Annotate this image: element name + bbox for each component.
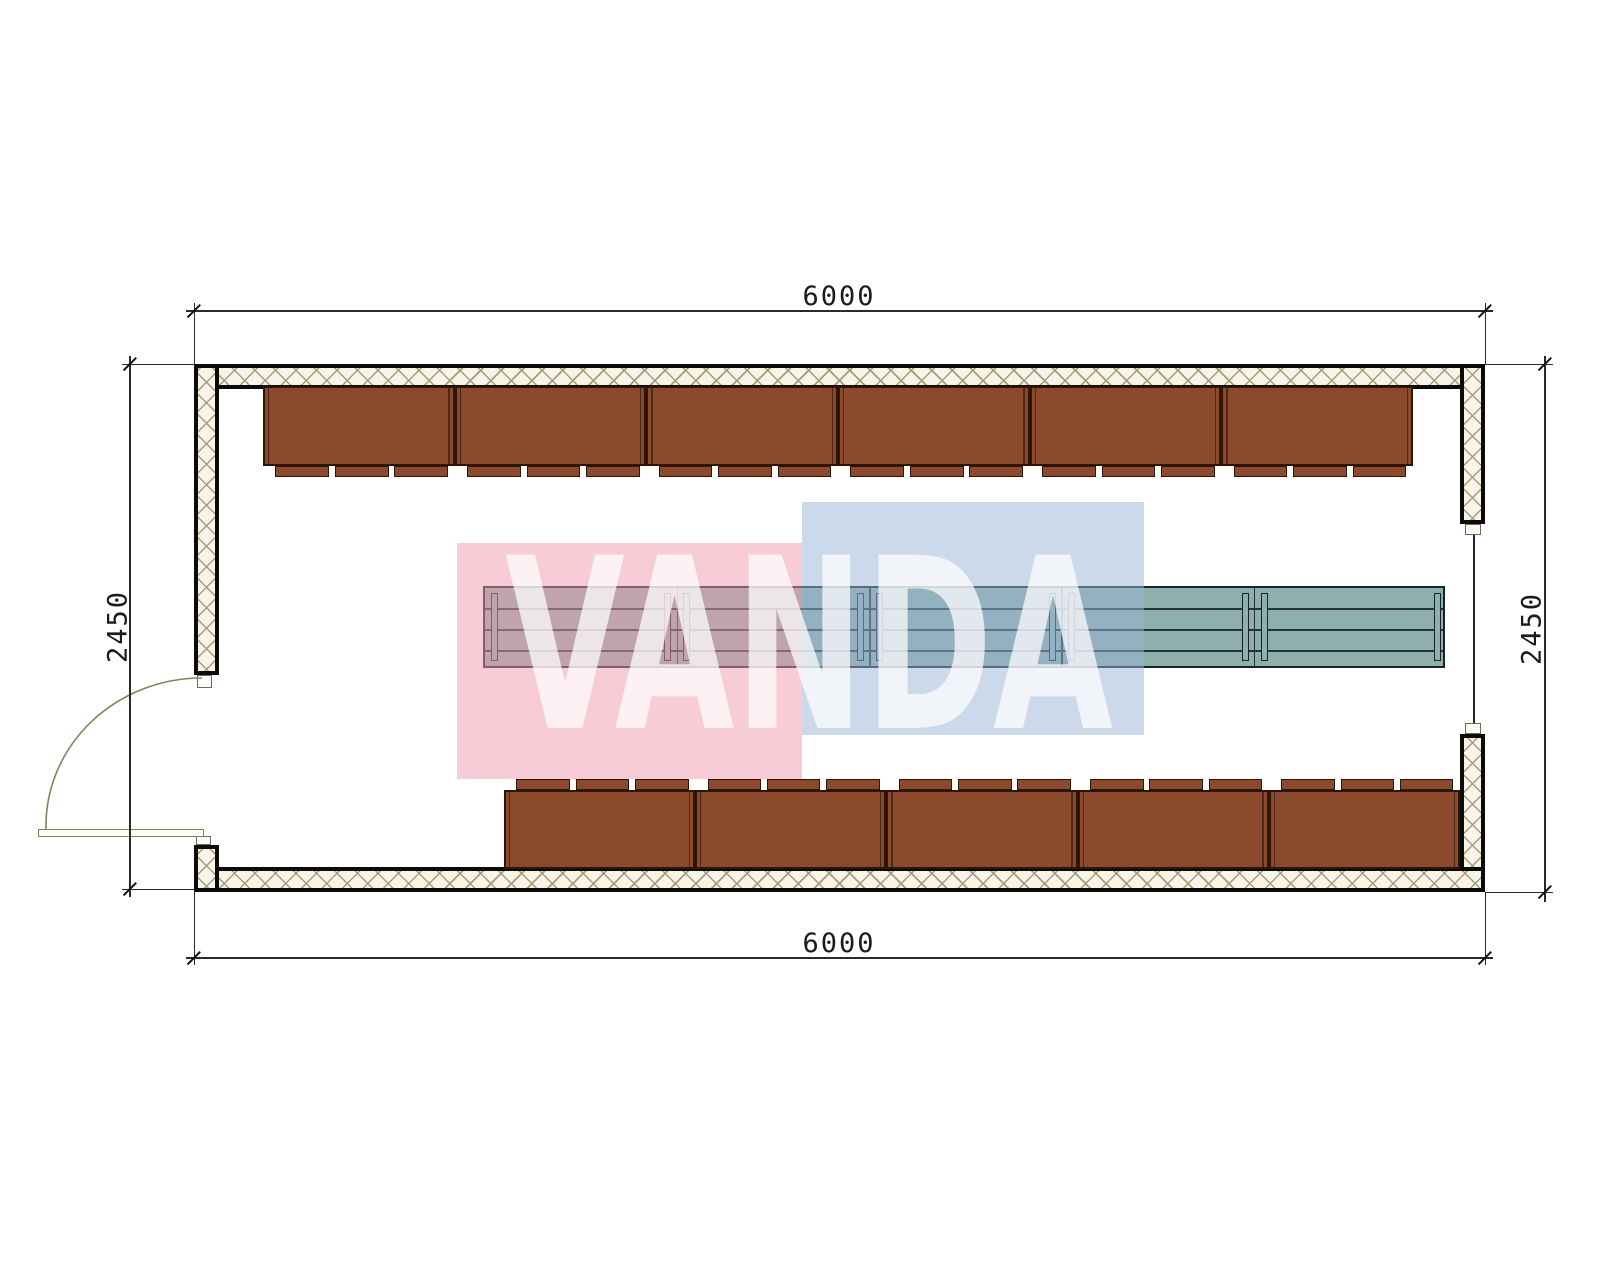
bench-edge-line — [460, 388, 461, 464]
bench-edge-line — [843, 388, 844, 464]
bench-row-bottom — [504, 779, 1460, 869]
bench-seat — [1221, 386, 1413, 466]
bench-foot-tab — [1293, 466, 1347, 477]
bench-foot-tab — [1149, 779, 1203, 790]
bench-foot-tab — [394, 466, 448, 477]
bench-edge-line — [640, 388, 641, 464]
bench-foot-tab — [1341, 779, 1395, 790]
bench-seat — [646, 386, 838, 466]
door-jamb-top — [197, 675, 212, 688]
bench-row-top — [263, 386, 1413, 477]
bench-foot-tab — [1400, 779, 1454, 790]
bench-edge-line — [700, 792, 701, 867]
bench-foot-tab — [850, 466, 904, 477]
table-leg — [857, 593, 864, 661]
bench-seat — [886, 790, 1077, 869]
dining-table — [483, 586, 1445, 668]
bench-edge-line — [832, 388, 833, 464]
window-line — [1473, 535, 1475, 723]
dim-label-bottom: 6000 — [779, 928, 899, 959]
bench-foot-tab — [659, 466, 713, 477]
bench-foot-tab — [910, 466, 964, 477]
bench-foot-tab — [718, 466, 772, 477]
bench-foot-tab — [635, 779, 689, 790]
bench-foot-tab — [1353, 466, 1407, 477]
bench-seat — [1078, 790, 1269, 869]
bench-seat — [695, 790, 886, 869]
bench-foot-tab — [1281, 779, 1335, 790]
bench-edge-line — [1262, 792, 1263, 867]
bench-edge-line — [891, 792, 892, 867]
bench-edge-line — [448, 388, 449, 464]
bench-edge-line — [1407, 388, 1408, 464]
dim-label-top: 6000 — [779, 281, 899, 312]
wall-bottom — [194, 867, 1485, 892]
table-leg — [1261, 593, 1268, 661]
table-plank-line — [485, 629, 1443, 631]
bench-edge-line — [689, 792, 690, 867]
bench-edge-line — [1083, 792, 1084, 867]
dim-label-right: 2450 — [1517, 569, 1548, 689]
table-leg — [1434, 593, 1441, 661]
table-leg — [1049, 593, 1056, 661]
table-leg — [1068, 593, 1075, 661]
table-plank-line — [485, 650, 1443, 652]
window-jamb-top — [1465, 524, 1481, 535]
table-leg — [491, 593, 498, 661]
table-leg — [1242, 593, 1249, 661]
bench-foot-tab — [335, 466, 389, 477]
door-leaf — [38, 829, 204, 837]
bench-edge-line — [1035, 388, 1036, 464]
bench-edge-line — [880, 792, 881, 867]
bench-edge-line — [1071, 792, 1072, 867]
bench-seat — [1030, 386, 1222, 466]
table-leg — [876, 593, 883, 661]
wall-right-upper — [1460, 364, 1485, 524]
bench-foot-tab — [1209, 779, 1263, 790]
bench-foot-tab — [826, 779, 880, 790]
bench-foot-tab — [516, 779, 570, 790]
bench-foot-tab — [586, 466, 640, 477]
bench-foot-tab — [275, 466, 329, 477]
bench-foot-tab — [1017, 779, 1071, 790]
bench-foot-tab — [576, 779, 630, 790]
table-segment-divider — [869, 588, 871, 666]
bench-edge-line — [509, 792, 510, 867]
bench-foot-tab — [969, 466, 1023, 477]
bench-seat — [504, 790, 695, 869]
table-leg — [683, 593, 690, 661]
table-leg — [664, 593, 671, 661]
ext-line — [122, 364, 194, 365]
bench-edge-line — [1454, 792, 1455, 867]
bench-foot-tab — [1090, 779, 1144, 790]
table-segment-divider — [677, 588, 679, 666]
bench-foot-tab — [958, 779, 1012, 790]
bench-edge-line — [651, 388, 652, 464]
bench-foot-tab — [467, 466, 521, 477]
ext-line — [122, 889, 194, 890]
table-segment-divider — [1254, 588, 1256, 666]
bench-seat — [838, 386, 1030, 466]
bench-foot-tab — [778, 466, 832, 477]
bench-foot-tab — [767, 779, 821, 790]
bench-foot-tab — [1042, 466, 1096, 477]
wall-left-upper — [194, 364, 219, 675]
bench-foot-tab — [1102, 466, 1156, 477]
bench-seat — [455, 386, 647, 466]
door-jamb-bottom — [196, 836, 211, 845]
bench-edge-line — [1023, 388, 1024, 464]
bench-foot-tab — [527, 466, 581, 477]
bench-foot-tab — [708, 779, 762, 790]
table-plank-line — [485, 608, 1443, 610]
bench-foot-tab — [899, 779, 953, 790]
wall-left-stub — [194, 845, 219, 892]
bench-foot-tab — [1161, 466, 1215, 477]
table-segment-divider — [1061, 588, 1063, 666]
bench-foot-tab — [1234, 466, 1288, 477]
floor-plan-canvas: 6000 6000 2450 2450 VANDA — [0, 0, 1600, 1280]
bench-edge-line — [1226, 388, 1227, 464]
bench-edge-line — [1274, 792, 1275, 867]
window-jamb-bottom — [1465, 723, 1481, 734]
bench-edge-line — [268, 388, 269, 464]
dim-label-left: 2450 — [103, 567, 134, 687]
bench-seat — [263, 386, 455, 466]
bench-seat — [1269, 790, 1460, 869]
bench-edge-line — [1215, 388, 1216, 464]
